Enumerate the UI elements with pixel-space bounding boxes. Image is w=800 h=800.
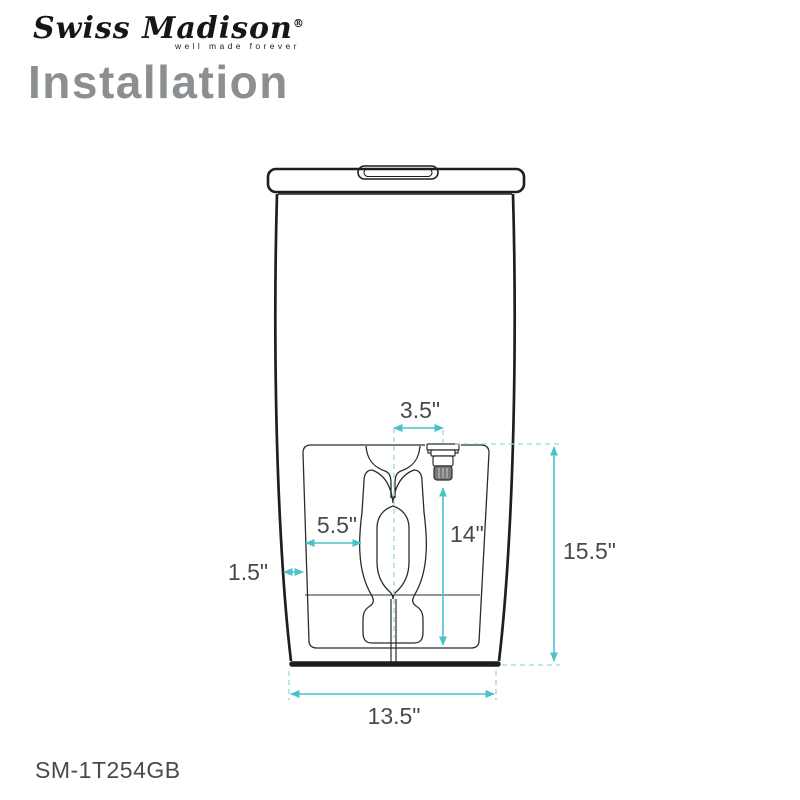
trapway-funnel-left (366, 446, 391, 498)
dimension-valve-height: 14" (443, 488, 484, 645)
dimension-trap-offset: 5.5" (306, 512, 361, 543)
body-left-side (275, 194, 291, 661)
installation-diagram: 3.5" 5.5" 1.5" 14" 15.5" 13.5" (0, 0, 800, 800)
dim-label-overall-height: 15.5" (563, 538, 616, 564)
dim-label-valve-offset: 3.5" (400, 397, 440, 423)
toilet-outline (268, 166, 524, 664)
dim-label-valve-height: 14" (450, 521, 484, 547)
valve-collar (431, 450, 455, 456)
dimension-overall-height: 15.5" (554, 447, 616, 661)
dimension-base-width: 13.5" (291, 694, 494, 729)
trapway-funnel-right (395, 446, 420, 498)
valve-body (433, 456, 453, 466)
dim-label-base-width: 13.5" (368, 703, 421, 729)
supply-valve (425, 441, 461, 480)
dimension-valve-offset: 3.5" (394, 397, 443, 428)
tank-lid (268, 169, 524, 192)
dim-label-side-wall: 1.5" (228, 559, 268, 585)
body-right-side (499, 194, 515, 661)
trapway-body (360, 470, 427, 643)
flush-button (358, 166, 438, 179)
trapway (360, 446, 427, 662)
dim-label-trap-offset: 5.5" (317, 512, 357, 538)
dimension-side-wall: 1.5" (228, 559, 303, 585)
product-code: SM-1T254GB (35, 757, 181, 784)
trapway-cavity (377, 506, 409, 599)
installation-sheet: Swiss Madison® well made forever Install… (0, 0, 800, 800)
valve-flange (427, 444, 459, 450)
